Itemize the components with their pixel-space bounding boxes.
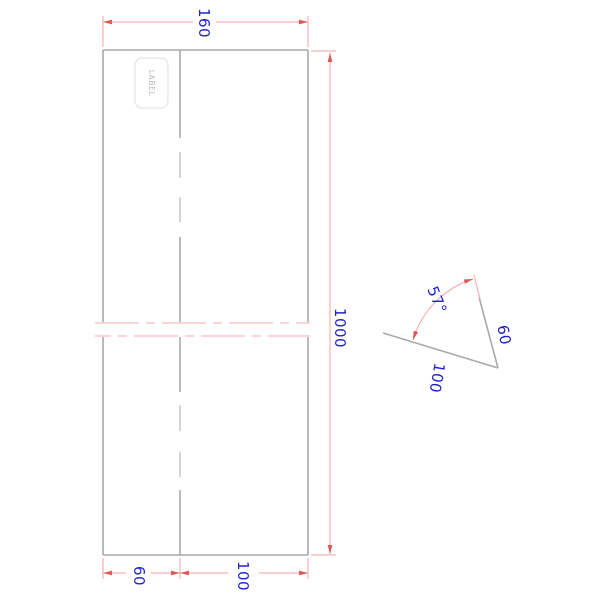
break-lines [95, 323, 310, 336]
dim-text-bottom-60: 60 [130, 566, 148, 586]
arrow-bottom-100-right [299, 571, 308, 576]
dimension-texts: 160 1000 60 100 57° 60 100 [130, 8, 515, 591]
part-outline [103, 50, 308, 555]
dim-text-width-160: 160 [195, 8, 213, 38]
arrow-top-left [103, 20, 112, 25]
arrow-arc-top [464, 277, 474, 284]
dim-text-base-100: 100 [426, 362, 449, 395]
dim-text-height-1000: 1000 [331, 308, 349, 348]
arrow-bottom-100-left [180, 571, 189, 576]
arrow-bottom-60-right [171, 571, 180, 576]
arrow-bottom-60-left [103, 571, 112, 576]
dim-text-bottom-100: 100 [234, 561, 252, 591]
arrow-right-top [328, 53, 333, 62]
cad-drawing: LABEL [0, 0, 600, 600]
detail-side-extension [474, 275, 480, 299]
label-tag-text: LABEL [147, 70, 156, 97]
arrow-top-right [299, 20, 308, 25]
dim-text-side-60: 60 [493, 324, 514, 347]
arrow-right-bottom [328, 545, 333, 554]
cad-canvas: LABEL [0, 0, 600, 600]
arrow-arc-bottom [411, 331, 418, 341]
label-tag: LABEL [135, 58, 168, 108]
